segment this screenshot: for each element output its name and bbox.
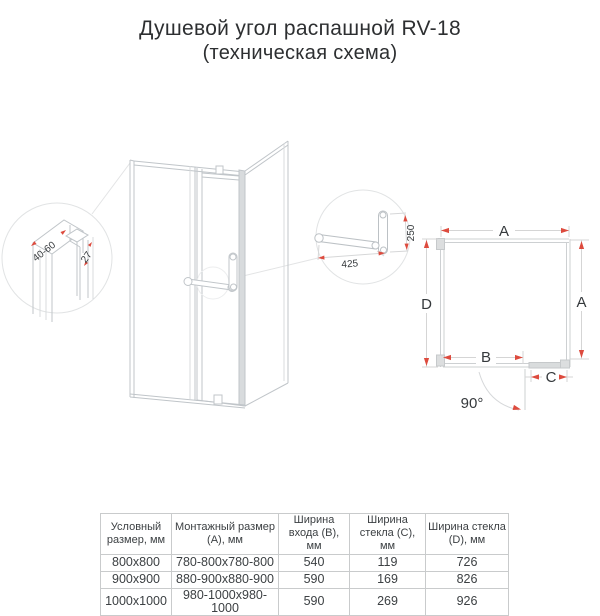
header-entry-width-b: Ширина входа (B), мм bbox=[279, 514, 350, 555]
callout-circle-profile bbox=[2, 203, 112, 313]
door-right-stile bbox=[239, 170, 245, 406]
header-nominal-size: Условный размер, мм bbox=[101, 514, 172, 555]
plan-dim-right-a: A bbox=[576, 294, 586, 311]
cell-mounting: 780-800x780-800 bbox=[172, 554, 279, 571]
cell-mounting: 880-900x880-900 bbox=[172, 571, 279, 588]
plan-dim-fixed-c: C bbox=[546, 369, 557, 386]
cell-nominal: 1000x1000 bbox=[101, 588, 172, 615]
door-bottom-hinge bbox=[214, 395, 222, 404]
cell-glass-d: 726 bbox=[426, 554, 509, 571]
wall-profile-callout: 40-60 27 bbox=[2, 203, 112, 322]
cell-glass-d: 826 bbox=[426, 571, 509, 588]
header-glass-width-c: Ширина стекла (C), мм bbox=[350, 514, 426, 555]
door-top-hinge bbox=[216, 166, 223, 174]
plan-dim-top-a: A bbox=[499, 223, 509, 240]
cell-glass-c: 269 bbox=[350, 588, 426, 615]
title-product-name: Душевой угол распашной RV-18 bbox=[0, 16, 600, 41]
cell-nominal: 900x900 bbox=[101, 571, 172, 588]
plan-door-angle: 90° bbox=[461, 395, 484, 412]
handle-bar-length-label: 425 bbox=[341, 258, 359, 270]
cell-entry: 590 bbox=[279, 588, 350, 615]
table-row: 1000x1000 980-1000x980-1000 590 269 926 bbox=[101, 588, 509, 615]
table-row: 900x900 880-900x880-900 590 169 826 bbox=[101, 571, 509, 588]
door-handle bbox=[184, 253, 237, 299]
plan-view: A D A B C 90° bbox=[418, 222, 590, 412]
cell-glass-d: 926 bbox=[426, 588, 509, 615]
cell-entry: 540 bbox=[279, 554, 350, 571]
cell-glass-c: 169 bbox=[350, 571, 426, 588]
header-glass-width-d: Ширина стекла (D), мм bbox=[426, 514, 509, 555]
cell-glass-c: 119 bbox=[350, 554, 426, 571]
page-title: Душевой угол распашной RV-18 (техническа… bbox=[0, 16, 600, 65]
plan-dim-left-d: D bbox=[421, 296, 432, 313]
cell-entry: 590 bbox=[279, 571, 350, 588]
plan-dim-entry-b: B bbox=[481, 349, 491, 366]
plan-wall-profiles bbox=[437, 239, 570, 369]
cell-nominal: 800x800 bbox=[101, 554, 172, 571]
size-spec-table: Условный размер, мм Монтажный размер (A)… bbox=[100, 513, 509, 616]
title-subtitle: (техническая схема) bbox=[0, 41, 600, 65]
table-header-row: Условный размер, мм Монтажный размер (A)… bbox=[101, 514, 509, 555]
header-mounting-size-a: Монтажный размер (A), мм bbox=[172, 514, 279, 555]
cell-mounting: 980-1000x980-1000 bbox=[172, 588, 279, 615]
enclosure-3d-view bbox=[130, 141, 288, 408]
handle-height-label: 250 bbox=[406, 224, 417, 241]
table-row: 800x800 780-800x780-800 540 119 726 bbox=[101, 554, 509, 571]
technical-drawing: 40-60 27 425 250 bbox=[0, 80, 600, 510]
handle-detail-callout: 425 250 bbox=[315, 190, 417, 284]
